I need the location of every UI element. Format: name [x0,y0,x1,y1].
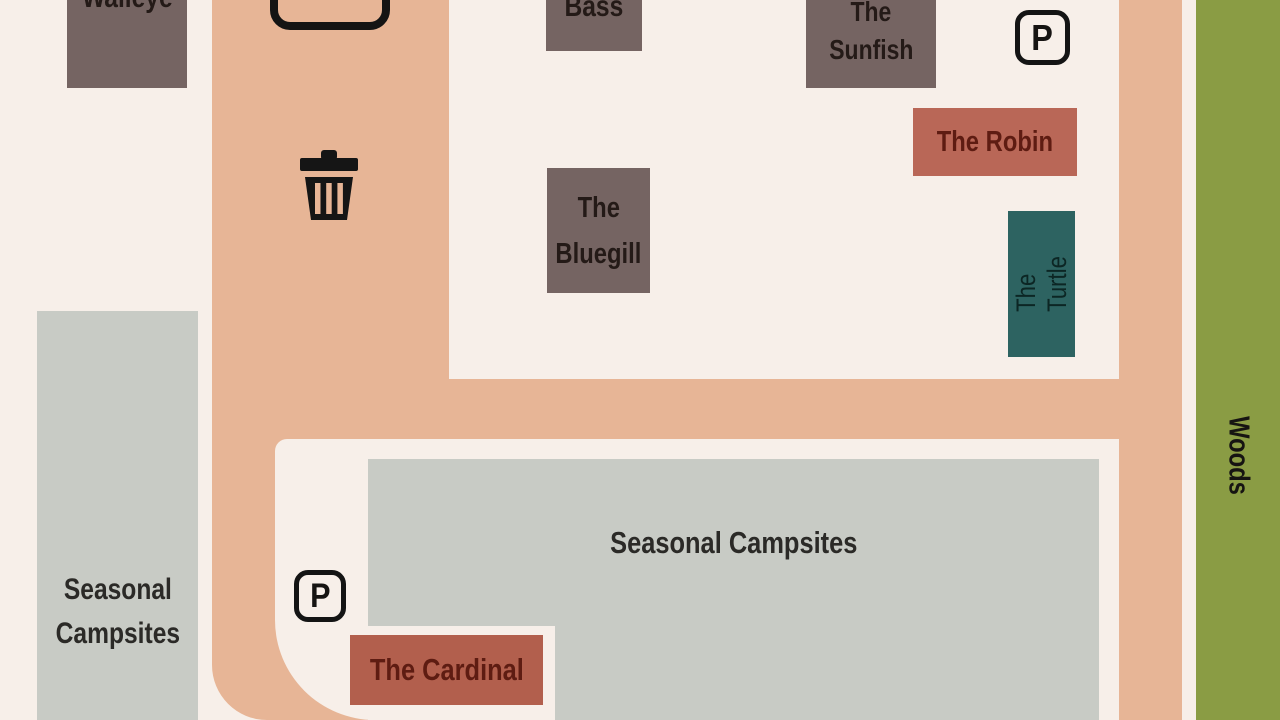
parking-letter: P [1032,17,1054,59]
parking-sign-icon: P [1015,10,1070,65]
cabin-bass: Bass [546,0,642,51]
woods-area [1196,0,1280,720]
cabin-cardinal: The Cardinal [350,635,543,705]
seasonal-campsites-left: Seasonal Campsites [37,311,198,720]
cabin-turtle: The Turtle [1008,211,1075,357]
seasonal-campsites-left-label: Seasonal Campsites [37,568,198,656]
seasonal-campsites-main-label: Seasonal Campsites [368,525,1099,561]
parking-sign-icon: P [294,570,346,622]
cabin-sunfish: The Sunfish [806,0,936,88]
cabin-robin: The Robin [913,108,1077,176]
road-horizontal [212,379,1119,439]
cutoff-sign-outline-icon [270,0,390,30]
campground-map: Woods Seasonal Campsites Seasonal Campsi… [0,0,1280,720]
road-right [1119,0,1182,720]
cabin-walleye: Walleye [67,0,187,88]
cabin-bluegill: The Bluegill [547,168,650,293]
trash-icon [300,150,358,220]
parking-letter: P [310,577,330,616]
woods-label: Woods [1196,385,1280,525]
